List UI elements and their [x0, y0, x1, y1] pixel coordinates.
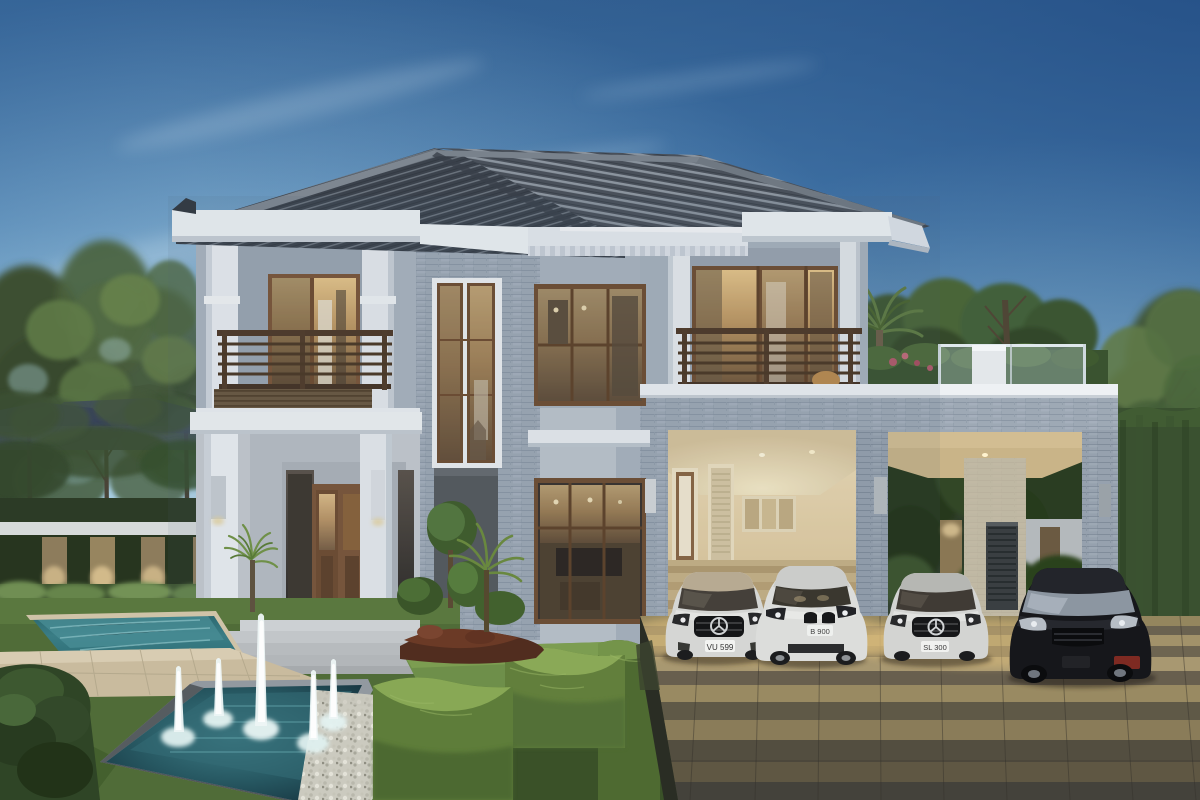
svg-text:VU 599: VU 599 — [707, 643, 734, 652]
svg-text:B 900: B 900 — [810, 627, 830, 636]
svg-text:SL 300: SL 300 — [923, 643, 947, 652]
